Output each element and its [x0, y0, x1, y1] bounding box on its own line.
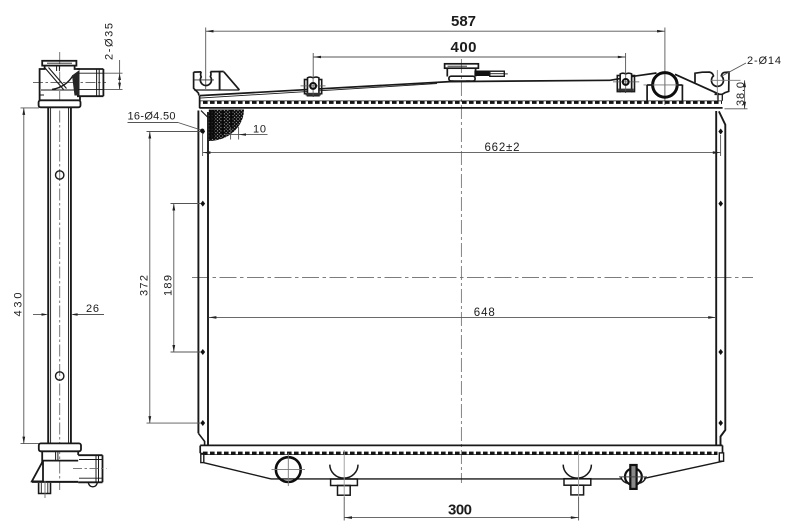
svg-text:400: 400 — [451, 39, 477, 56]
svg-text:587: 587 — [451, 13, 476, 30]
svg-text:189: 189 — [163, 275, 175, 296]
svg-text:10: 10 — [253, 124, 266, 136]
svg-text:2-Ø35: 2-Ø35 — [104, 23, 116, 60]
svg-text:16-Ø4.50: 16-Ø4.50 — [128, 111, 176, 123]
svg-text:648: 648 — [474, 307, 495, 319]
svg-text:300: 300 — [448, 502, 472, 519]
svg-text:430: 430 — [13, 293, 25, 317]
svg-text:38.0: 38.0 — [735, 82, 747, 106]
svg-text:662±2: 662±2 — [485, 142, 520, 154]
svg-text:2-Ø14: 2-Ø14 — [747, 55, 781, 67]
svg-text:372: 372 — [139, 275, 151, 296]
svg-text:26: 26 — [86, 303, 99, 315]
